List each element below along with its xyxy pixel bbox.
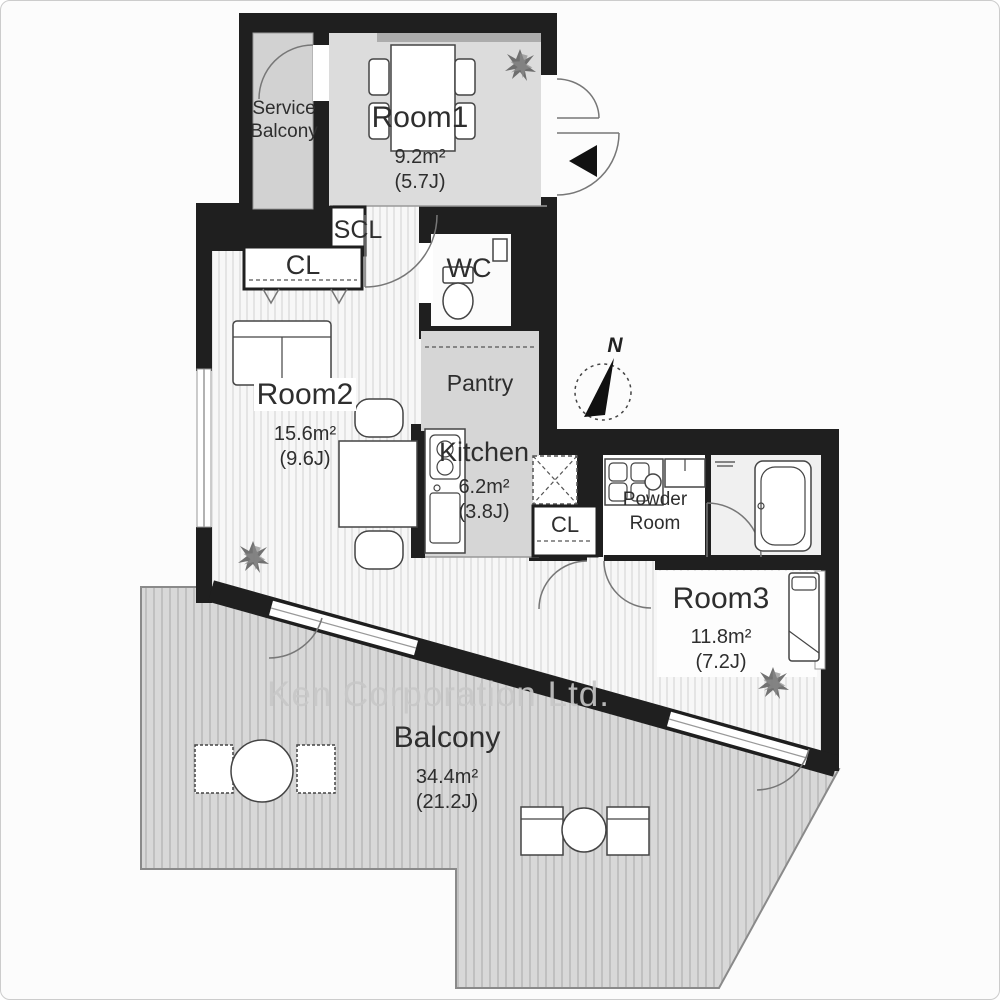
pantry-label: Pantry [421, 370, 539, 397]
room1-label: Room1 [357, 101, 483, 135]
kitchen-area-m2: 6.2m² [417, 475, 551, 500]
wc-label: WC [425, 253, 513, 284]
kitchen-area: 6.2m² (3.8J) [417, 475, 551, 525]
room1-area-m2: 9.2m² [357, 145, 483, 170]
balcony-chair-icon [297, 745, 335, 793]
dining-table-icon [391, 45, 455, 151]
room2-label: Room2 [239, 378, 371, 412]
room2-area-tatami: (9.6J) [239, 447, 371, 472]
closet1-label: CL [245, 250, 361, 281]
kitchen-area-tatami: (3.8J) [417, 500, 551, 525]
balcony-chair-icon [195, 745, 233, 793]
closet2-label: CL [533, 512, 597, 538]
room3-area-tatami: (7.2J) [659, 650, 783, 675]
balcony-area: 34.4m² (21.2J) [379, 765, 515, 815]
watermark: Ken Corporation Ltd. [267, 675, 610, 715]
balcony-chair-icon [607, 807, 649, 855]
powder-room-label: Powder Room [602, 488, 708, 536]
floor-plan: Service Balcony Room1 9.2m² (5.7J) SCL C… [0, 0, 1000, 1000]
chair-icon [355, 531, 403, 569]
balcony-chair-icon [521, 807, 563, 855]
room3-area-m2: 11.8m² [659, 625, 783, 650]
room2-area-m2: 15.6m² [239, 422, 371, 447]
balcony-table-icon [231, 740, 293, 802]
service-balcony-label: Service Balcony [238, 98, 330, 144]
compass-icon [575, 358, 631, 420]
bed-icon [789, 573, 819, 661]
room3-label: Room3 [659, 582, 783, 616]
room1-area-tatami: (5.7J) [357, 170, 483, 195]
entrance-door-arcs [557, 79, 619, 195]
chair-icon [369, 59, 389, 95]
scl-label: SCL [327, 216, 389, 245]
room3-area: 11.8m² (7.2J) [659, 625, 783, 675]
room1-area: 9.2m² (5.7J) [357, 145, 483, 195]
balcony-area-tatami: (21.2J) [379, 790, 515, 815]
room2-label-text: Room2 [254, 378, 357, 411]
service-balcony-door-gap [313, 45, 329, 101]
balcony-area-m2: 34.4m² [379, 765, 515, 790]
room2-area: 15.6m² (9.6J) [239, 422, 371, 472]
room1-window-band [377, 33, 541, 42]
chair-icon [455, 59, 475, 95]
entrance-arrow-icon [569, 145, 597, 177]
washer-icon [665, 459, 705, 487]
balcony-table-icon [562, 808, 606, 852]
kitchen-label: Kitchen [417, 437, 551, 468]
balcony-label: Balcony [379, 721, 515, 755]
room2-sofa [233, 321, 331, 385]
compass-north-label: N [597, 334, 633, 358]
